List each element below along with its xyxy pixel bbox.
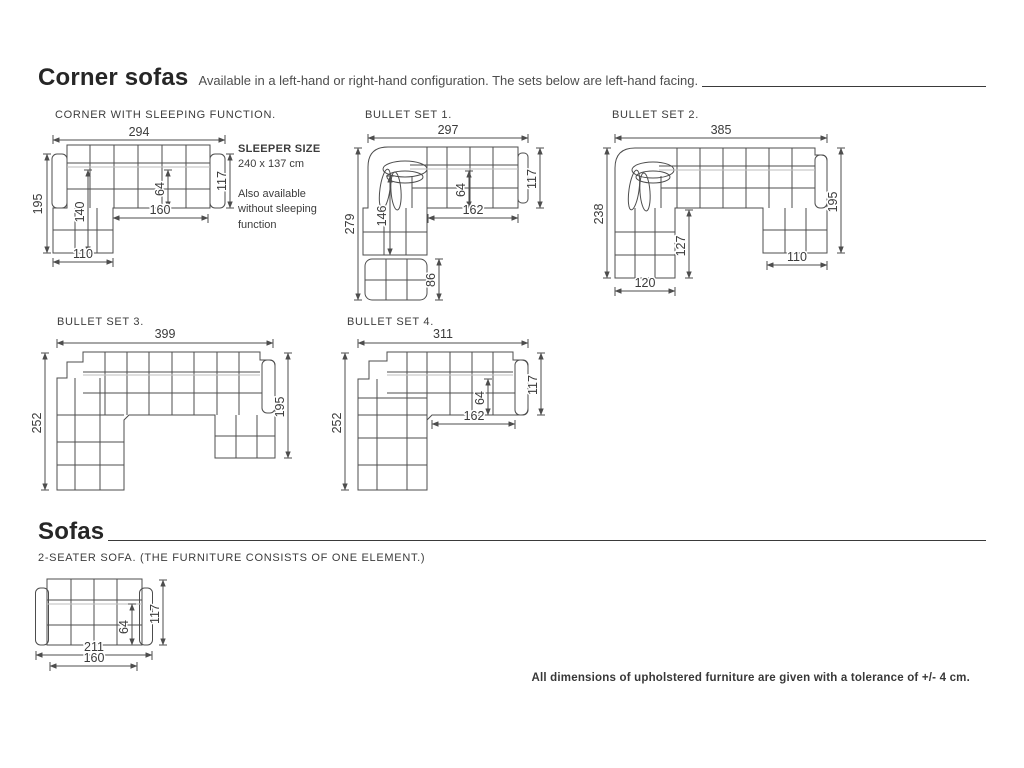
sofa-outline <box>52 145 225 253</box>
bolster-pillow <box>390 172 403 211</box>
section-title: Sofas <box>38 518 104 546</box>
dimensions: 311 252 117 64 162 <box>330 327 545 490</box>
dim-seat-depth: 64 <box>454 183 468 197</box>
dim-seat-width: 160 <box>150 203 171 217</box>
dim-seat-width: 162 <box>463 203 484 217</box>
sleeper-note-extra: Also available without sleeping function <box>238 187 334 233</box>
dim-total-width: 385 <box>711 123 732 137</box>
sofa-outline <box>358 352 528 490</box>
sofas-header: Sofas <box>38 518 986 546</box>
dim-seat-depth: 64 <box>153 182 167 196</box>
dim-body-depth: 117 <box>215 171 229 191</box>
sleeper-note-title: SLEEPER SIZE <box>238 142 334 157</box>
dim-right-chaise-width: 110 <box>787 250 807 264</box>
dim-total-width: 294 <box>129 125 150 139</box>
label-bullet-set-1: BULLET SET 1. <box>365 109 452 121</box>
catalog-page: Corner sofas Available in a left-hand or… <box>0 0 1024 768</box>
dim-right-depth: 195 <box>273 397 287 418</box>
dim-body-depth: 117 <box>525 169 539 189</box>
dim-seat-width: 160 <box>84 651 105 665</box>
dim-inner-depth: 127 <box>674 236 688 257</box>
label-two-seater: 2-SEATER SOFA. (THE FURNITURE CONSISTS O… <box>38 552 425 564</box>
sofa-outline <box>57 352 275 490</box>
dim-ottoman-depth: 86 <box>424 273 438 287</box>
bolster-pillow <box>639 173 652 212</box>
dim-total-width: 297 <box>438 123 459 137</box>
bullet-set-4-diagram: 311 252 117 64 162 <box>335 315 575 505</box>
bullet-set-2-diagram: 385 238 127 120 195 110 <box>595 122 875 305</box>
dim-body-depth: 117 <box>148 604 162 624</box>
dim-right-depth: 195 <box>826 192 840 213</box>
left-armrest <box>52 154 67 208</box>
header-rule <box>108 540 986 541</box>
dim-seat-width: 162 <box>464 409 485 423</box>
dim-seat-depth: 64 <box>473 391 487 405</box>
page-title: Corner sofas <box>38 64 188 92</box>
page-subtitle: Available in a left-hand or right-hand c… <box>198 73 698 88</box>
dim-inner-depth: 146 <box>375 206 389 227</box>
dimensions: 399 252 195 <box>30 327 292 490</box>
dim-chaise-width: 110 <box>73 247 93 261</box>
dim-left-depth: 252 <box>330 413 344 434</box>
dim-left-chaise-width: 120 <box>635 276 656 290</box>
dim-seat-depth: 64 <box>117 620 131 634</box>
label-corner-sleeping: CORNER WITH SLEEPING FUNCTION. <box>55 109 276 121</box>
dimensions: 297 279 146 64 162 117 86 <box>343 123 544 300</box>
bullet-set-3-diagram: 399 252 195 <box>30 315 325 505</box>
dim-total-depth: 279 <box>343 214 357 235</box>
dim-total-width: 311 <box>433 327 453 341</box>
dimensions: 294 195 140 64 160 117 110 <box>31 125 234 267</box>
dim-body-depth: 117 <box>526 375 540 395</box>
sofa-outline <box>36 579 153 645</box>
dim-left-depth: 238 <box>592 204 606 225</box>
dim-total-width: 399 <box>155 327 176 341</box>
corner-sofas-header: Corner sofas Available in a left-hand or… <box>38 64 986 92</box>
two-seater-diagram: 64 117 211 160 <box>25 570 195 675</box>
dim-inner-depth: 140 <box>73 202 87 223</box>
dim-total-depth: 195 <box>31 194 45 215</box>
sleeper-note-size: 240 x 137 cm <box>238 157 334 172</box>
sleeper-note: SLEEPER SIZE 240 x 137 cm Also available… <box>238 142 334 233</box>
label-bullet-set-2: BULLET SET 2. <box>612 109 699 121</box>
tolerance-note: All dimensions of upholstered furniture … <box>531 672 970 684</box>
bullet-set-1-diagram: 297 279 146 64 162 117 86 <box>340 122 580 305</box>
dim-left-depth: 252 <box>30 413 44 434</box>
header-rule <box>702 86 986 87</box>
